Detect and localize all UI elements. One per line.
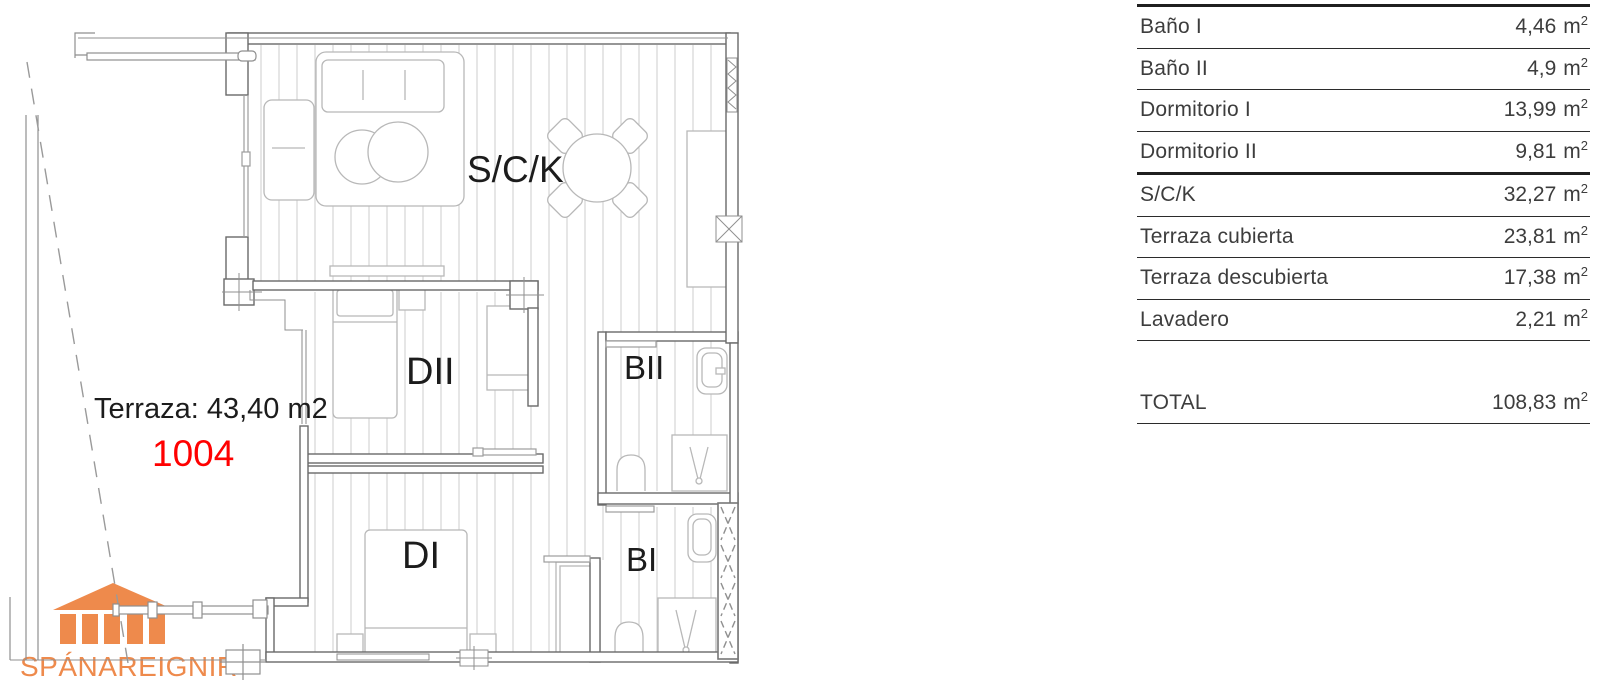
door-dii [480, 449, 536, 455]
room-area: 13,99m2 [1504, 98, 1590, 122]
terrace-boundary-dashed [27, 62, 128, 663]
room-area: 4,46m2 [1515, 15, 1590, 39]
room-name: Lavadero [1137, 308, 1229, 332]
door-bii [606, 341, 656, 347]
dining-table [563, 134, 631, 202]
unit-number: 1004 [152, 433, 234, 474]
table-row: Baño I 4,46m2 [1137, 7, 1590, 49]
table-row: S/C/K 32,27m2 [1137, 175, 1590, 217]
sofa-back-cushions [322, 60, 444, 112]
room-name: Baño I [1137, 15, 1202, 39]
door-di [544, 556, 590, 562]
table-row: Dormitorio I 13,99m2 [1137, 90, 1590, 132]
kitchen-counter [687, 131, 728, 287]
floorplan-drawing: SPÁNAREIGNIR S/C/K DII BII [0, 0, 760, 689]
room-area: 17,38m2 [1504, 266, 1590, 290]
room-area: 2,21m2 [1515, 308, 1590, 332]
room-name: Dormitorio II [1137, 140, 1257, 164]
room-area: 23,81m2 [1504, 225, 1590, 249]
total-label: TOTAL [1137, 391, 1207, 415]
room-label-sck: S/C/K [467, 149, 564, 190]
table-row: Terraza descubierta 17,38m2 [1137, 258, 1590, 300]
table-row: Lavadero 2,21m2 [1137, 300, 1590, 342]
room-label-bi: BI [626, 541, 657, 578]
table-row: Terraza cubierta 23,81m2 [1137, 217, 1590, 259]
room-area: 4,9m2 [1527, 57, 1590, 81]
duct-shaft [718, 503, 738, 659]
terrace-door-handle [242, 152, 250, 166]
table-row: Dormitorio II 9,81m2 [1137, 132, 1590, 176]
room-name: S/C/K [1137, 183, 1196, 207]
door-bi [606, 506, 654, 512]
terrace-area-label: Terraza: 43,40 m2 [94, 393, 328, 425]
agency-logo: SPÁNAREIGNIR [20, 583, 238, 682]
table-total-row: TOTAL 108,83m2 [1137, 382, 1590, 424]
room-label-bii: BII [624, 349, 664, 386]
table-row: Baño II 4,9m2 [1137, 49, 1590, 91]
floorplan-sheet: SPÁNAREIGNIR S/C/K DII BII [0, 0, 1600, 689]
room-name: Terraza descubierta [1137, 266, 1328, 290]
coffee-table [368, 122, 428, 182]
room-name: Dormitorio I [1137, 98, 1251, 122]
tv-bench [330, 266, 444, 276]
room-name: Baño II [1137, 57, 1208, 81]
room-area: 9,81m2 [1515, 140, 1590, 164]
room-area: 32,27m2 [1504, 183, 1590, 207]
room-name: Terraza cubierta [1137, 225, 1294, 249]
room-label-di: DI [402, 535, 440, 577]
toilet [617, 455, 645, 491]
total-area: 108,83m2 [1492, 391, 1590, 415]
sofa-chaise [264, 100, 314, 200]
room-label-dii: DII [406, 351, 455, 393]
area-table: Baño I 4,46m2 Baño II 4,9m2 Dormitorio I… [1137, 4, 1590, 424]
logo-text: SPÁNAREIGNIR [20, 651, 238, 682]
